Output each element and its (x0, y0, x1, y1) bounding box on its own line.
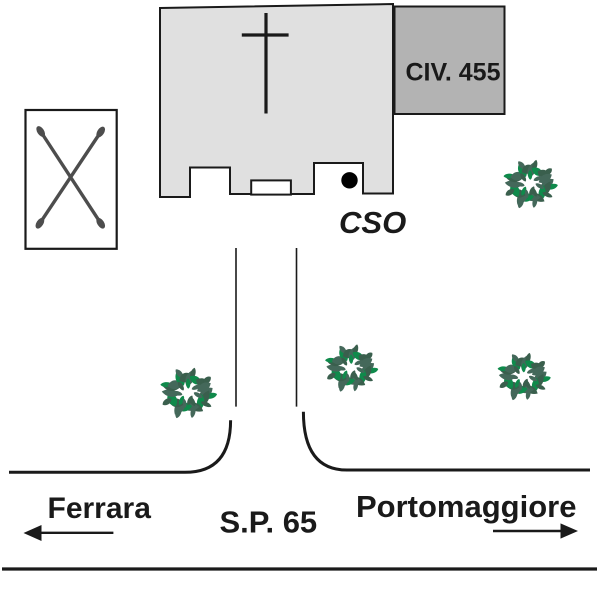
svg-text:Ferrara: Ferrara (48, 492, 152, 525)
svg-text:Portomaggiore: Portomaggiore (356, 489, 576, 524)
svg-text:CSO: CSO (339, 205, 406, 240)
svg-text:S.P. 65: S.P. 65 (220, 505, 318, 540)
svg-text:CIV. 455: CIV. 455 (406, 59, 501, 87)
